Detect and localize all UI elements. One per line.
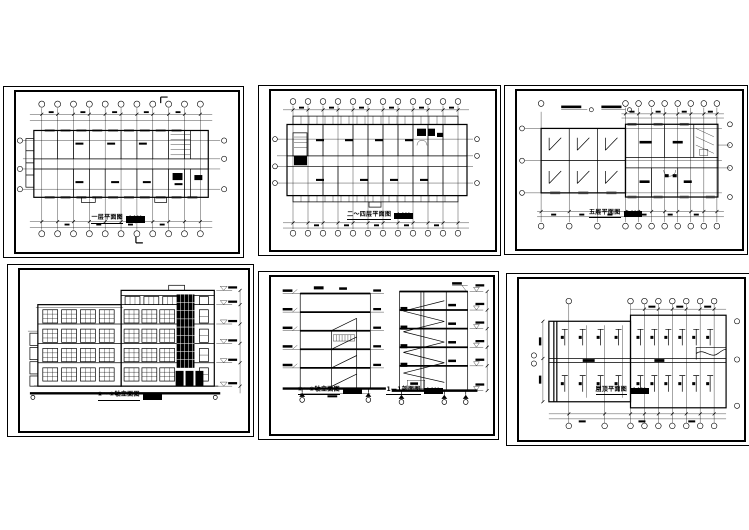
sheet-title-section-1-1: 1—1剖面图 1:100 xyxy=(386,387,442,396)
sheet-title-text: ⑧～①轴立面图 xyxy=(298,387,340,396)
sheet-scale: 1:100 xyxy=(143,393,162,400)
sheet-first-floor-plan: 一层平面图 1:100 xyxy=(3,86,244,258)
sheet-side-elevation-and-section: ⑧～①轴立面图 1:100 1—1剖面图 1:100 xyxy=(258,271,499,440)
sheet-title-text: 一层平面图 xyxy=(91,215,123,224)
sheet-front-elevation: ①～⑧轴立面图 1:100 xyxy=(7,264,254,437)
sheet-title: ①～⑧轴立面图 1:100 xyxy=(98,392,162,401)
fifth-floor-plan-drawing xyxy=(517,91,742,249)
drawing-board: 一层平面图 1:100 xyxy=(0,0,749,530)
sheet-inner-frame: 五层平面图 1:100 xyxy=(515,89,744,251)
sheet-title-text: 1—1剖面图 xyxy=(386,387,420,396)
sheet-scale: 1:100 xyxy=(126,216,145,223)
sheet-scale: 1:100 xyxy=(424,388,443,395)
sheet-inner-frame: ①～⑧轴立面图 1:100 xyxy=(18,268,250,433)
sheet-roof-plan: 屋顶平面图 1:100 xyxy=(506,273,749,446)
sheet-title-text: 五层平面图 xyxy=(589,210,621,219)
sheet-inner-frame: 一层平面图 1:100 xyxy=(14,90,240,254)
sheet-title: 屋顶平面图 1:100 xyxy=(596,387,649,396)
sheet-floors-2-4-plan: 二～四层平面图 1:100 xyxy=(258,85,501,256)
sheet-inner-frame: 屋顶平面图 1:100 xyxy=(517,277,746,442)
sheet-inner-frame: ⑧～①轴立面图 1:100 1—1剖面图 1:100 xyxy=(269,275,495,436)
sheet-scale: 1:100 xyxy=(394,213,413,220)
sheet-scale: 1:100 xyxy=(624,211,643,218)
sheet-title-text: ①～⑧轴立面图 xyxy=(98,392,140,401)
sheet-scale: 1:100 xyxy=(343,388,362,395)
sheet-scale: 1:100 xyxy=(630,388,649,395)
front-elevation-drawing xyxy=(20,270,248,431)
sheet-title-text: 屋顶平面图 xyxy=(596,387,628,396)
sheet-title: 二～四层平面图 1:100 xyxy=(347,212,413,221)
sheet-title: 五层平面图 1:100 xyxy=(589,210,642,219)
sheet-title-text: 二～四层平面图 xyxy=(347,212,391,221)
roof-plan-drawing xyxy=(519,279,744,440)
floors-2-4-plan-drawing xyxy=(271,91,495,250)
first-floor-plan-drawing xyxy=(16,92,238,252)
side-elevation-and-section-drawing xyxy=(271,277,493,434)
sheet-title: 一层平面图 1:100 xyxy=(91,215,144,224)
sheet-inner-frame: 二～四层平面图 1:100 xyxy=(269,89,497,252)
sheet-title-side-elevation: ⑧～①轴立面图 1:100 xyxy=(298,387,362,396)
sheet-fifth-floor-plan: 五层平面图 1:100 xyxy=(504,85,748,255)
